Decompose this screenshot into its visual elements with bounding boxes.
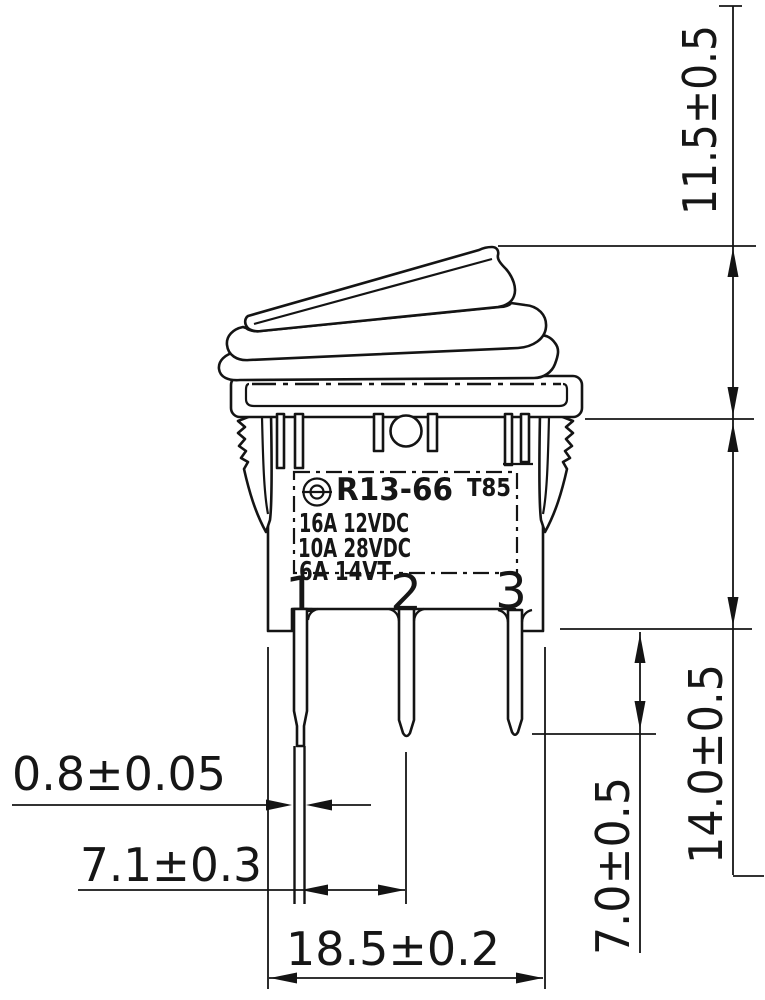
post xyxy=(374,414,383,451)
dim-terminal-thickness: 0.8±0.05 xyxy=(12,747,226,801)
arrow-left-icon xyxy=(306,800,332,811)
dim-body-width: 18.5±0.2 xyxy=(286,922,500,976)
dim-rocker-height: 11.5±0.5 xyxy=(673,25,727,215)
arrow-right-icon xyxy=(516,973,543,984)
arrow-up-icon xyxy=(728,248,739,277)
spring-clip-left xyxy=(238,414,272,532)
dim-terminal-spacing: 7.1±0.3 xyxy=(80,838,262,892)
arrow-down-icon xyxy=(728,597,739,626)
arrow-right-icon xyxy=(266,800,292,811)
terminal-3-blade xyxy=(508,610,522,735)
mounting-bezel xyxy=(231,376,582,417)
arrow-down-icon xyxy=(635,701,646,730)
arrow-up-icon xyxy=(728,423,739,452)
post xyxy=(277,414,284,468)
spring-clip-right xyxy=(539,414,573,532)
arrow-down-icon xyxy=(728,387,739,416)
model-number-text: R13-66 xyxy=(336,472,453,508)
rocker-switch-drawing: R13-66 T85 16A 12VDC 10A 28VDC 6A 14VT 1… xyxy=(0,0,765,1000)
rocker-actuator xyxy=(219,247,558,380)
post xyxy=(521,414,529,462)
arrow-right-icon xyxy=(378,885,405,896)
terminals-group xyxy=(294,609,532,904)
arrow-up-icon xyxy=(635,634,646,663)
terminal-2-blade xyxy=(399,609,414,736)
post xyxy=(428,414,437,451)
terminal-1-blade xyxy=(294,609,307,746)
post xyxy=(505,414,512,465)
dim-body-depth: 14.0±0.5 xyxy=(679,664,733,864)
temp-rating-text: T85 xyxy=(467,473,511,502)
post xyxy=(295,414,303,468)
technical-drawing-canvas: R13-66 T85 16A 12VDC 10A 28VDC 6A 14VT 1… xyxy=(0,0,765,1000)
pivot-hole xyxy=(391,416,422,447)
dim-terminal-length: 7.0±0.5 xyxy=(586,777,640,955)
